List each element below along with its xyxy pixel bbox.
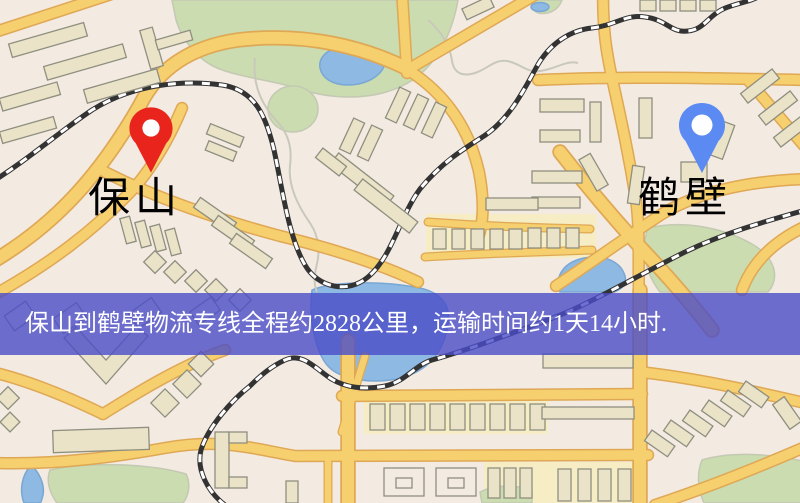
- destination-map-pin-icon[interactable]: [677, 102, 727, 174]
- route-info-text: 保山到鹤壁物流专线全程约2828公里，运输时间约1天14小时.: [0, 293, 800, 355]
- destination-label: 鹤壁: [638, 178, 732, 220]
- origin-label: 保山: [88, 178, 182, 220]
- origin-marker[interactable]: [128, 105, 174, 180]
- origin-map-pin-icon[interactable]: [128, 105, 174, 175]
- map-canvas[interactable]: [0, 0, 800, 503]
- map-screenshot: 保山到鹤壁物流专线全程约2828公里，运输时间约1天14小时. 保山 鹤壁: [0, 0, 800, 503]
- destination-marker[interactable]: [677, 102, 727, 179]
- route-info-banner: 保山到鹤壁物流专线全程约2828公里，运输时间约1天14小时.: [0, 293, 800, 355]
